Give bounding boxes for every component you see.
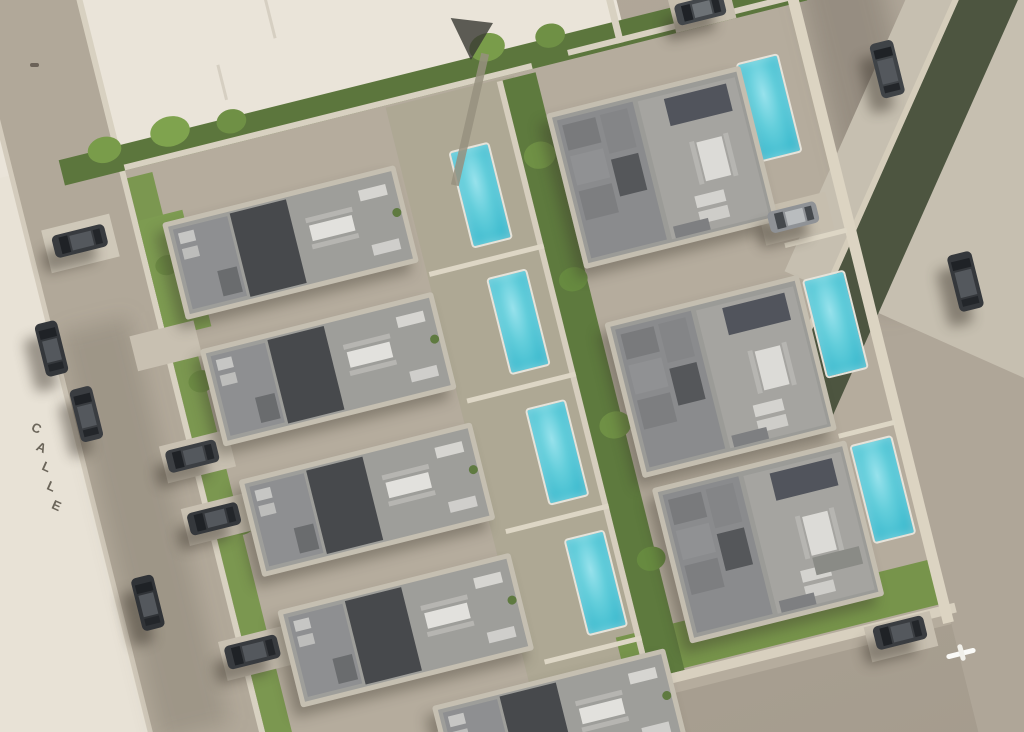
street-name-letter: C [30, 420, 44, 436]
car-roof [138, 592, 158, 617]
rear-window [144, 616, 160, 626]
rear-window [711, 0, 721, 13]
rear-window [83, 427, 99, 437]
rear-window [204, 444, 214, 460]
car-roof [42, 338, 62, 363]
small-bird [30, 63, 39, 67]
street-name-letter: L [45, 479, 58, 494]
rear-window [48, 361, 64, 371]
street-name-letter: E [50, 498, 63, 513]
car-roof [692, 0, 713, 18]
rear-window [961, 296, 979, 307]
development-site: CALLE [0, 0, 1024, 732]
rear-window [226, 506, 236, 522]
aerial-render: CALLE [0, 0, 1024, 732]
rear-window [93, 228, 103, 244]
car-roof [890, 622, 913, 642]
car-roof [877, 57, 898, 84]
car-roof [785, 208, 806, 226]
car-roof [77, 404, 97, 429]
street-name-letter: L [40, 459, 53, 474]
street-name-letter: A [35, 440, 49, 456]
rear-window [265, 639, 276, 656]
flying-bird [946, 645, 976, 663]
car-roof [204, 509, 227, 528]
car-roof [242, 641, 267, 662]
car-roof [183, 446, 206, 465]
rear-window [912, 620, 923, 637]
rear-window [804, 206, 814, 221]
car-roof [69, 231, 94, 251]
car-roof [955, 269, 978, 298]
rear-window [883, 83, 900, 94]
